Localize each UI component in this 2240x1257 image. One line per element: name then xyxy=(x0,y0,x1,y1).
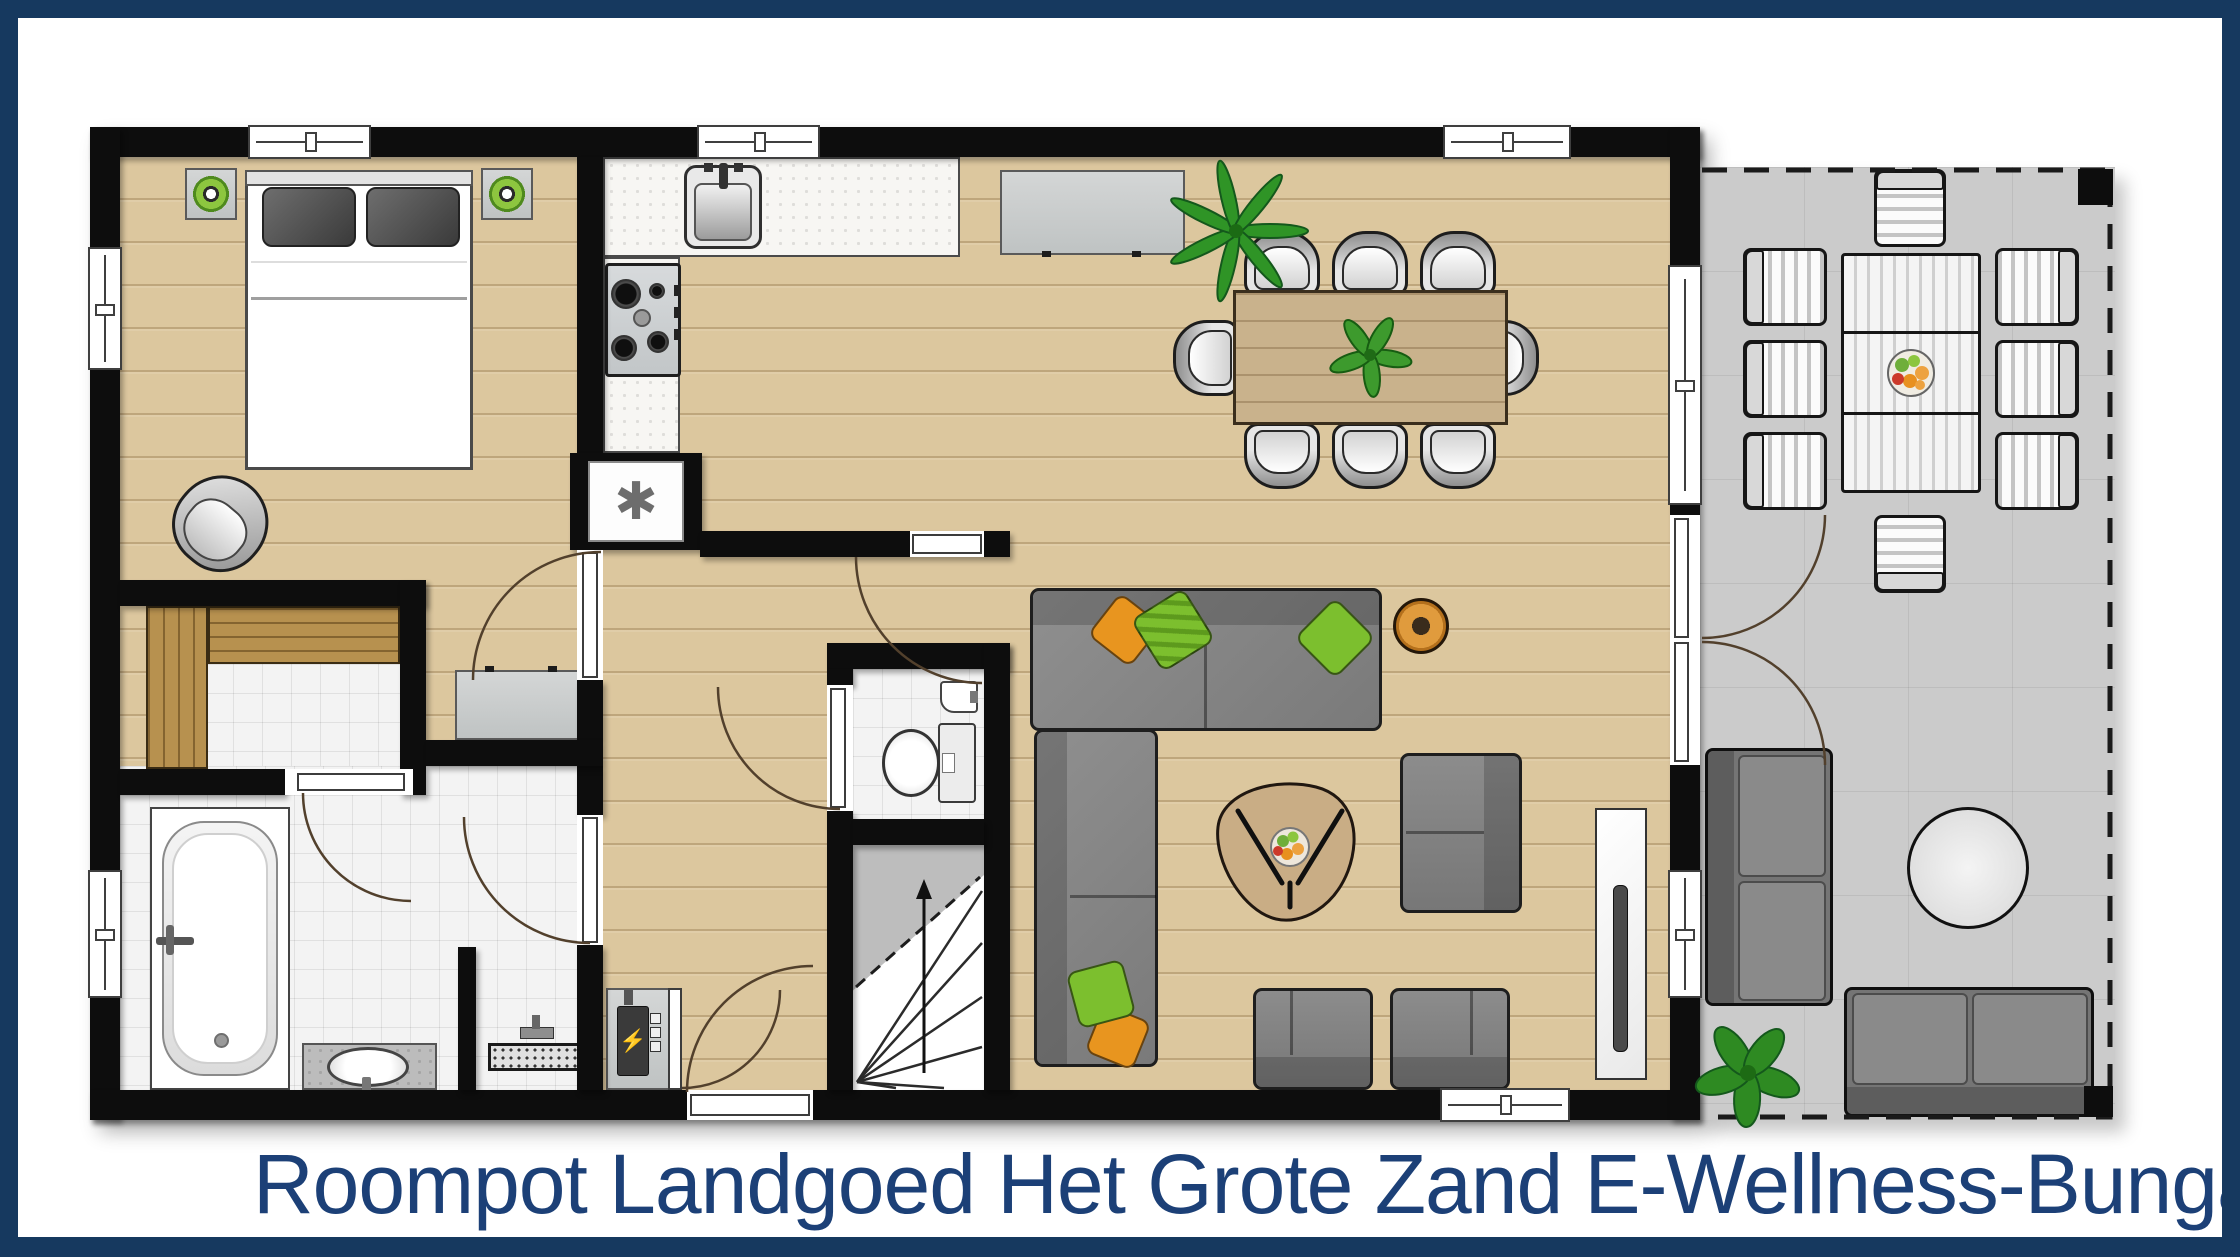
plan-overlay xyxy=(90,85,2115,1135)
frame-bottom xyxy=(0,1237,2240,1257)
patio-fruit-bowl-icon xyxy=(1888,350,1934,396)
door-arc-front xyxy=(687,966,813,1092)
stairs-arrow-head xyxy=(916,879,932,899)
terrace-corner-post xyxy=(2078,169,2113,205)
palm-plant-icon xyxy=(1168,159,1308,302)
stairs xyxy=(857,891,982,1088)
plan-title: Roompot Landgoed Het Grote Zand E-Wellne… xyxy=(253,1136,2240,1233)
frame-left xyxy=(0,0,18,1257)
door-arc-sauna xyxy=(303,793,411,901)
door-arc-living xyxy=(856,557,982,683)
terrace-boundary-dashed xyxy=(1702,170,2110,1117)
floorplan-image: ⚡ xyxy=(0,0,2240,1257)
frame-right xyxy=(2222,0,2240,1257)
stairs-cut-line xyxy=(856,877,980,987)
plant-icon xyxy=(1328,315,1413,398)
terrace-plant-icon xyxy=(1693,1021,1804,1127)
floor-plan: ⚡ xyxy=(90,85,2115,1135)
coffee-table xyxy=(1218,784,1354,920)
door-arc-meter xyxy=(682,990,780,1088)
terrace-corner-post xyxy=(2084,1086,2113,1117)
door-arc-wc xyxy=(718,687,840,809)
door-arc-french-bottom xyxy=(1702,642,1825,765)
door-arc-bathroom xyxy=(464,817,590,943)
frame-top xyxy=(0,0,2240,18)
door-arc-french-top xyxy=(1702,515,1825,638)
door-arc-bedroom xyxy=(473,552,601,680)
